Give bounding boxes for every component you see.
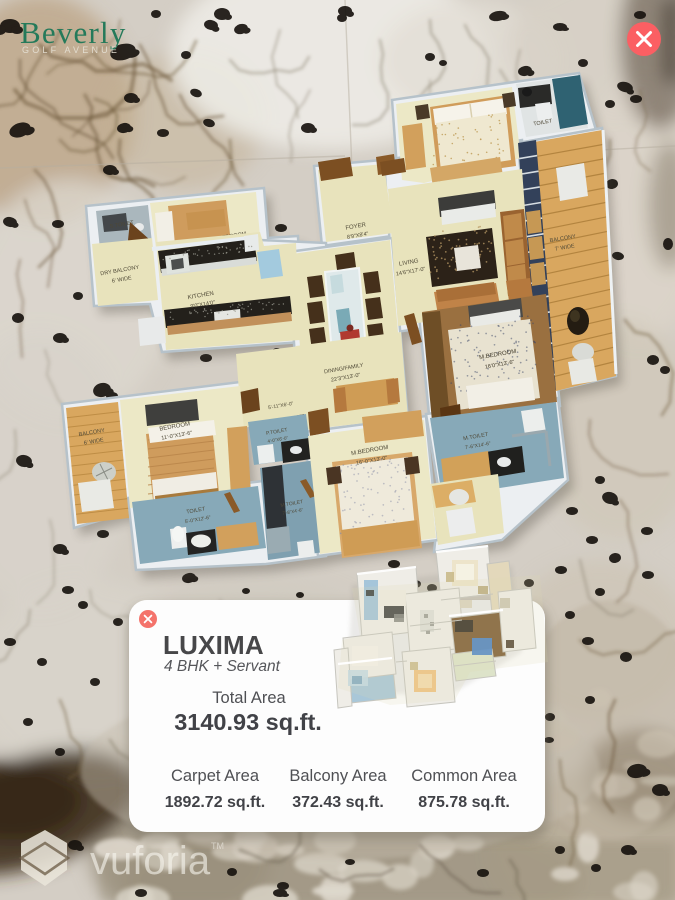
svg-text:TM: TM [211, 841, 224, 851]
svg-text:1892.72 sq.ft.: 1892.72 sq.ft. [165, 794, 266, 811]
svg-text:LUXIMA: LUXIMA [163, 630, 264, 660]
svg-text:GOLF AVENUE: GOLF AVENUE [22, 45, 120, 55]
svg-text:Balcony Area: Balcony Area [289, 767, 387, 785]
svg-text:vuforia: vuforia [90, 839, 211, 883]
svg-text:4 BHK + Servant: 4 BHK + Servant [164, 658, 281, 675]
svg-text:Common Area: Common Area [411, 767, 517, 785]
svg-text:Carpet Area: Carpet Area [171, 767, 260, 785]
svg-text:Total Area: Total Area [212, 689, 286, 707]
svg-text:372.43 sq.ft.: 372.43 sq.ft. [292, 794, 384, 811]
svg-text:3140.93 sq.ft.: 3140.93 sq.ft. [174, 709, 322, 735]
svg-text:875.78 sq.ft.: 875.78 sq.ft. [418, 794, 510, 811]
